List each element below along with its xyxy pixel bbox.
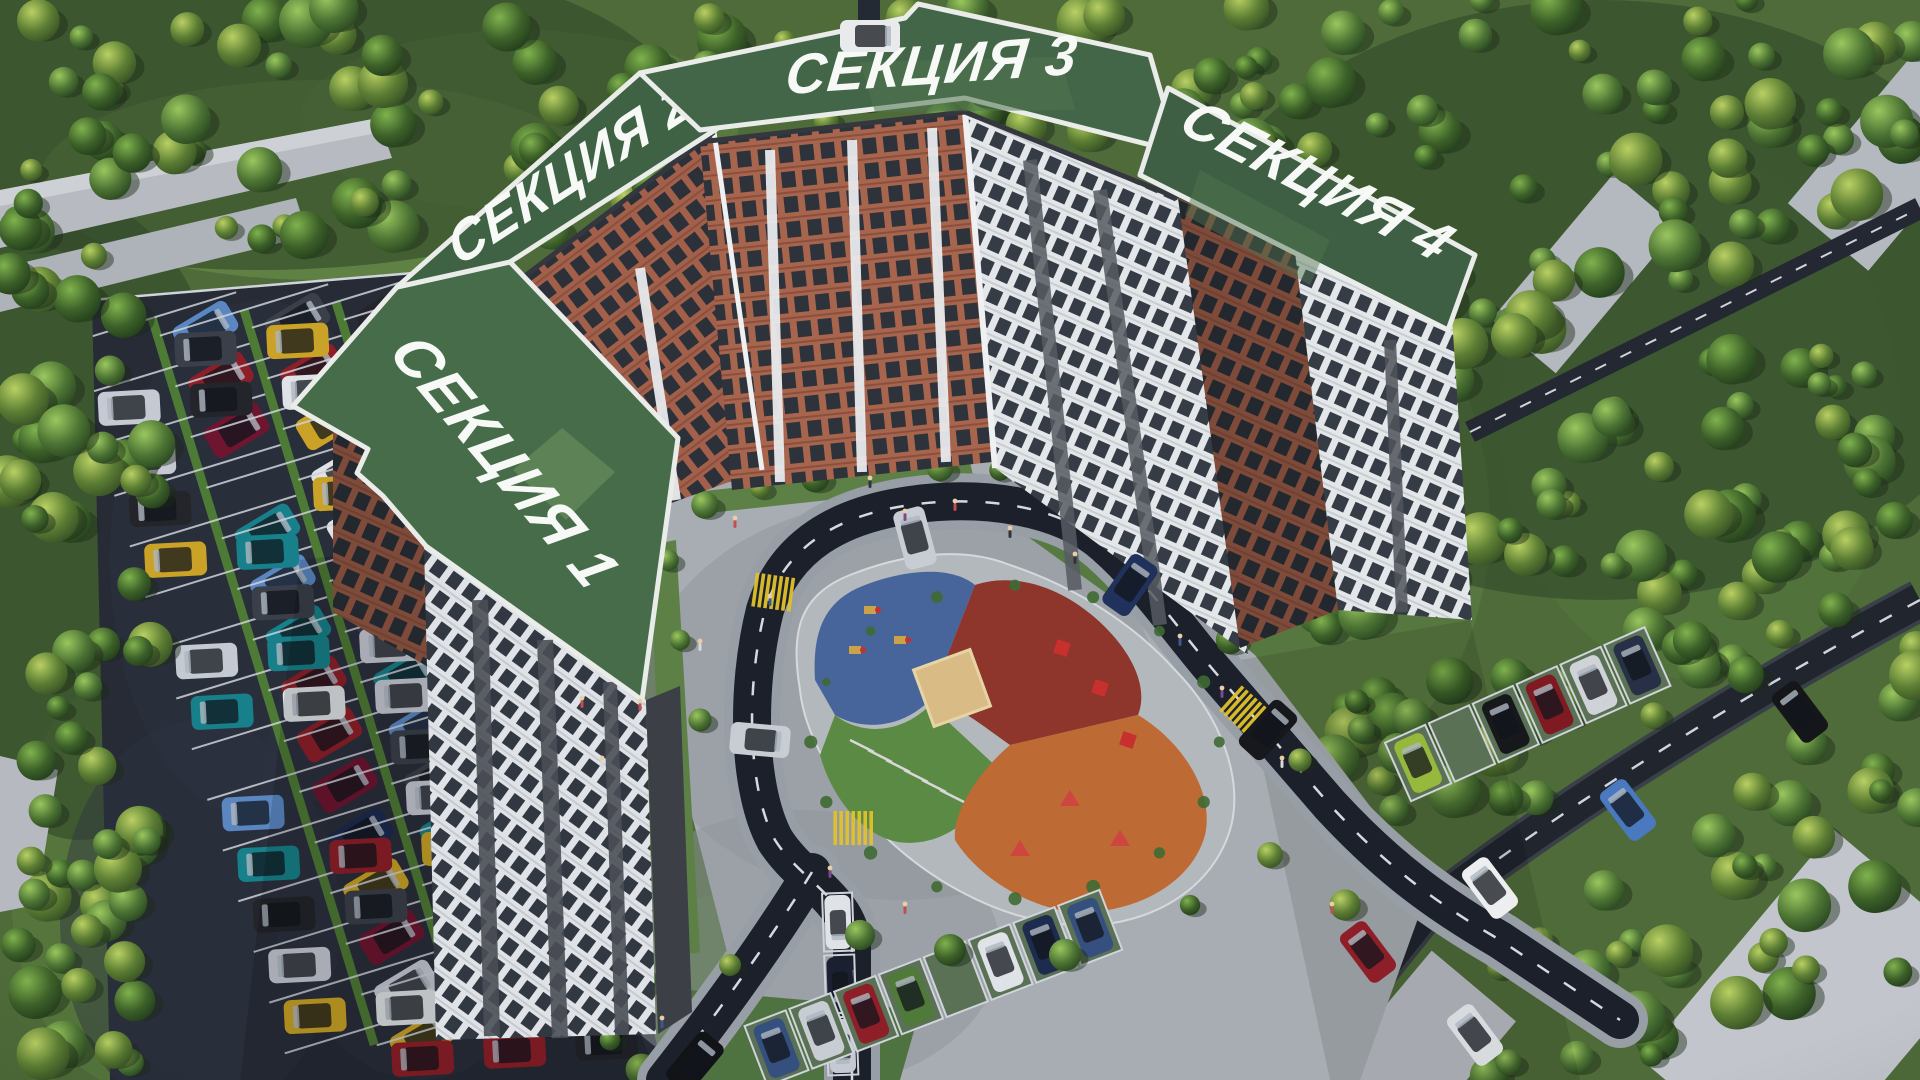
car [266,322,330,359]
car [189,381,253,418]
masterplan-render: СЕКЦИЯ 1 СЕКЦИЯ 2 СЕКЦИЯ 3 СЕКЦИЯ 4 [0,0,1920,1080]
car [174,330,238,367]
residential-complex-aerial-view: СЕКЦИЯ 1 СЕКЦИЯ 2 СЕКЦИЯ 3 СЕКЦИЯ 4 [0,0,1920,1080]
car [840,20,900,52]
car [236,533,300,570]
car [190,693,254,730]
car [729,721,792,758]
car [144,541,208,578]
car [175,642,239,679]
